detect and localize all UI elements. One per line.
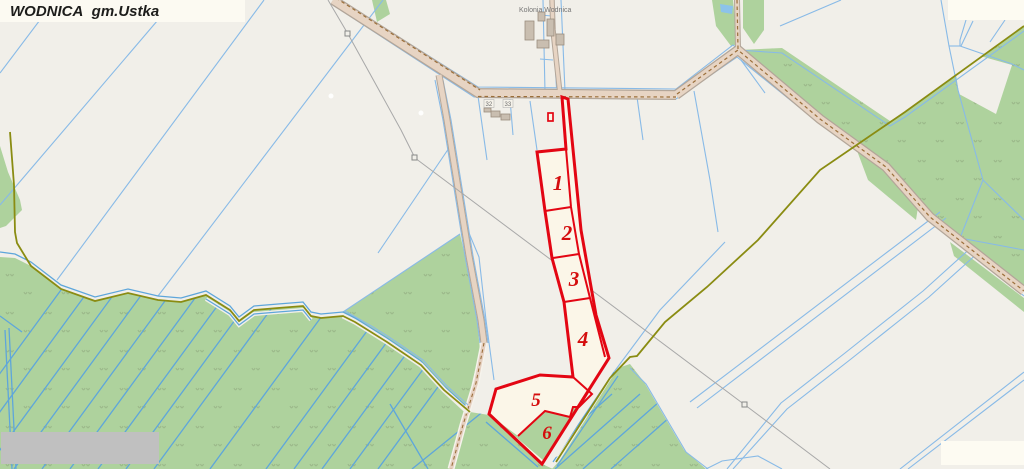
svg-text:Kolonia Wodnica: Kolonia Wodnica — [519, 7, 572, 14]
svg-text:1: 1 — [553, 171, 564, 195]
svg-text:6: 6 — [542, 423, 552, 444]
svg-text:WODNICA gm.Ustka: WODNICA gm.Ustka — [10, 3, 159, 20]
svg-text:2: 2 — [561, 221, 573, 245]
svg-text:32: 32 — [486, 102, 493, 108]
svg-text:33: 33 — [505, 102, 512, 108]
svg-text:5: 5 — [531, 390, 541, 411]
svg-text:4: 4 — [577, 327, 589, 351]
svg-text:3: 3 — [568, 267, 580, 291]
